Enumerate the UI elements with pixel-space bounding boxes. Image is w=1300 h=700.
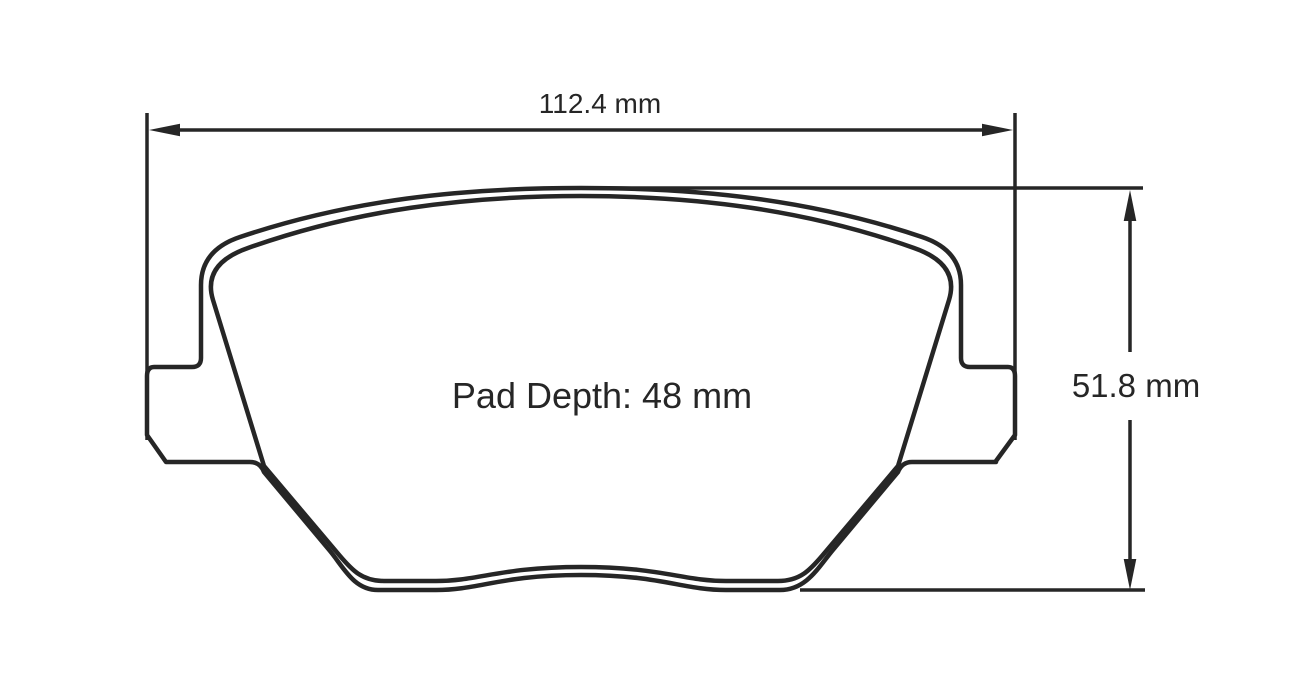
width-arrow-right-icon	[982, 124, 1013, 137]
brake-pad-dimension-drawing: 112.4 mm 51.8 mm Pad Depth: 48 mm	[0, 0, 1300, 700]
width-arrow-left-icon	[149, 124, 180, 137]
height-arrow-up-icon	[1124, 190, 1137, 221]
height-dimension-label: 51.8 mm	[1072, 367, 1200, 404]
diagram-canvas: 112.4 mm 51.8 mm Pad Depth: 48 mm	[0, 0, 1300, 700]
height-arrow-down-icon	[1124, 559, 1137, 590]
pad-depth-label: Pad Depth: 48 mm	[452, 375, 752, 416]
width-dimension-label: 112.4 mm	[539, 88, 661, 119]
